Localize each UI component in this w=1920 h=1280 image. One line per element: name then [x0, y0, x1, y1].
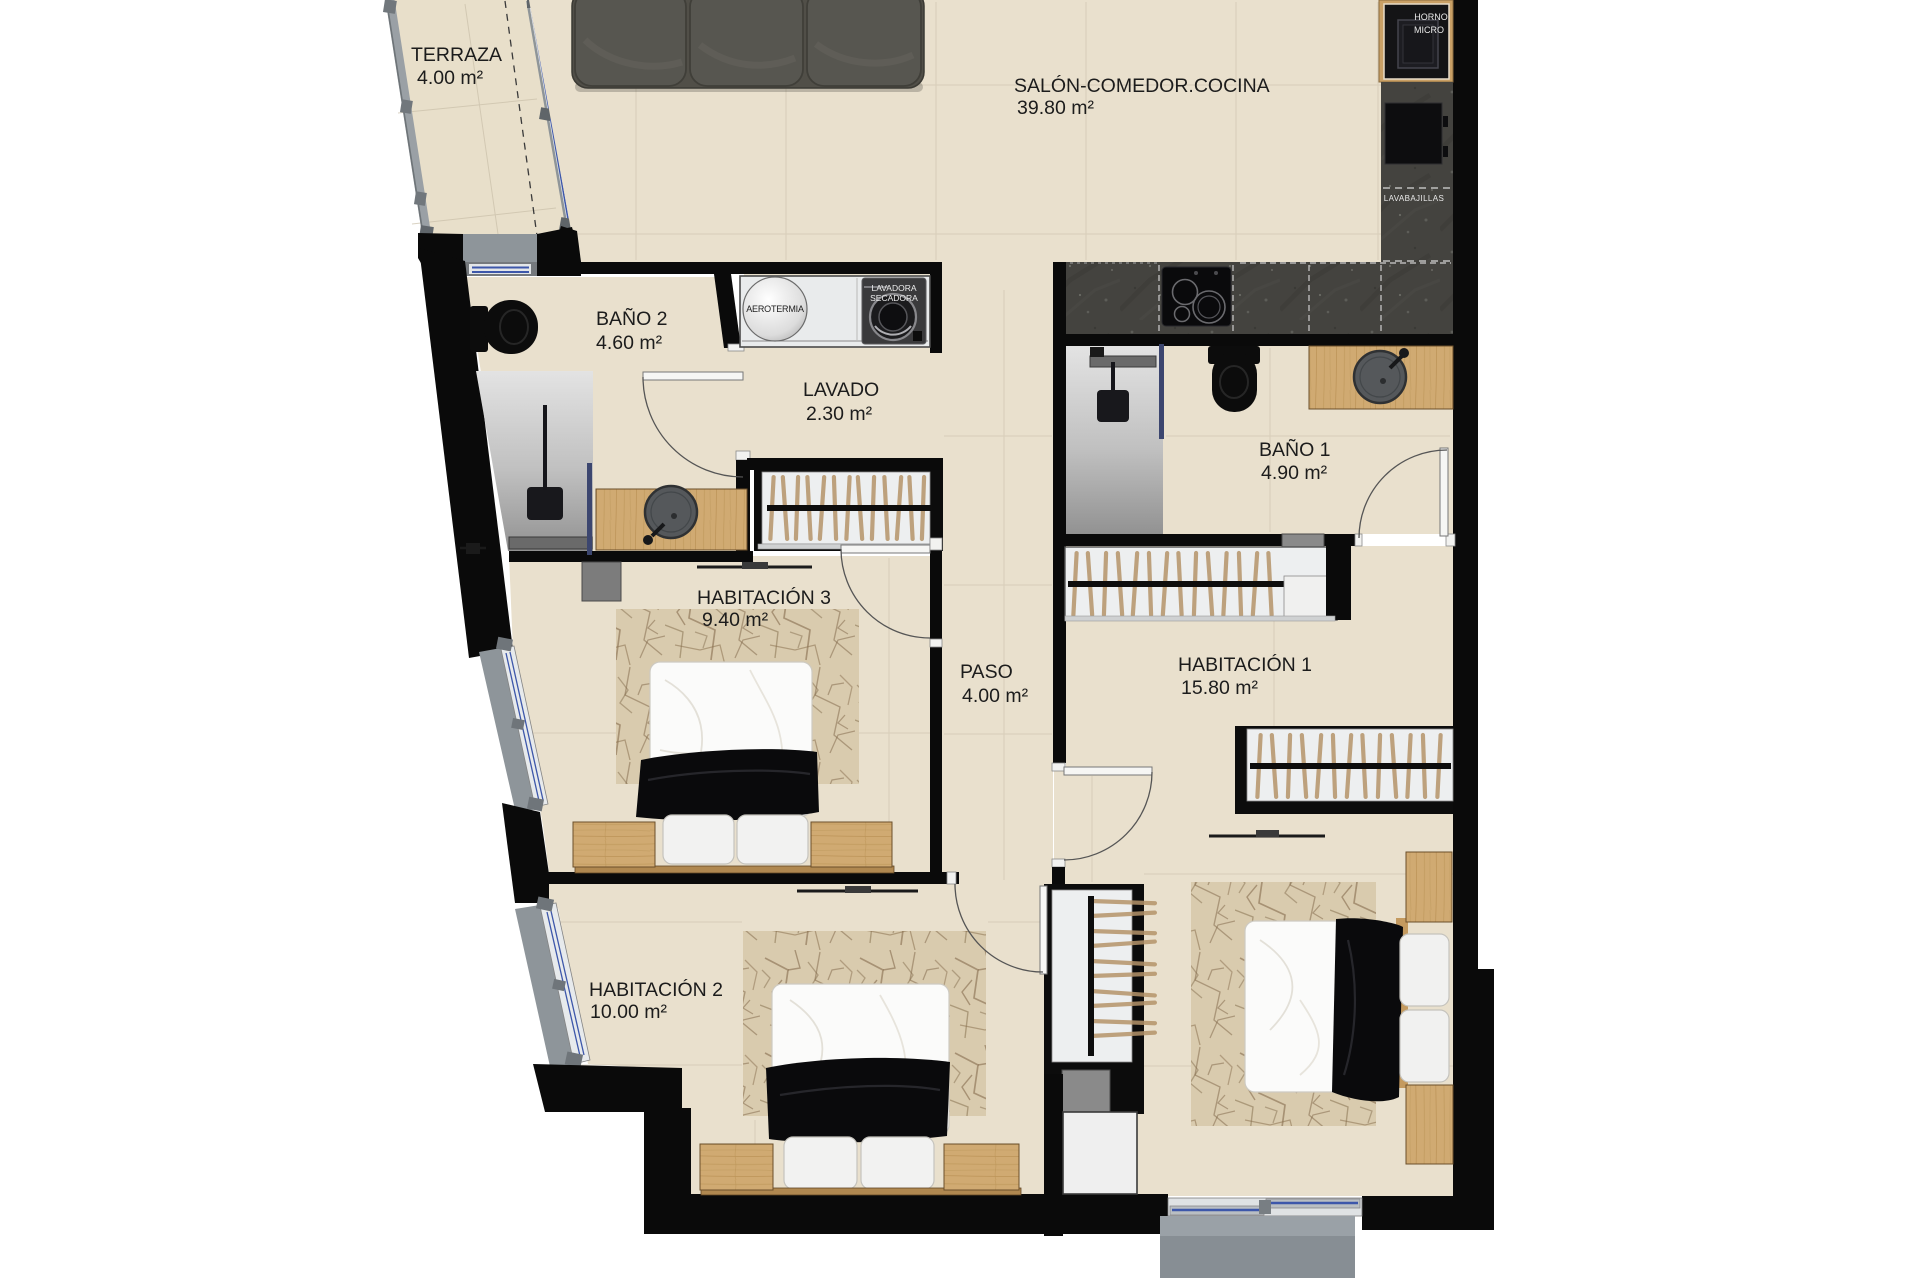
svg-text:15.80 m²: 15.80 m²: [1181, 677, 1258, 699]
svg-text:BAÑO 1: BAÑO 1: [1259, 437, 1331, 461]
svg-text:HABITACIÓN 1: HABITACIÓN 1: [1178, 653, 1312, 676]
svg-text:39.80 m²: 39.80 m²: [1017, 97, 1094, 119]
svg-text:HORNO: HORNO: [1414, 12, 1448, 22]
svg-text:4.00 m²: 4.00 m²: [417, 67, 484, 89]
svg-text:TERRAZA: TERRAZA: [411, 44, 502, 66]
svg-text:4.60 m²: 4.60 m²: [596, 332, 663, 354]
svg-text:9.40 m²: 9.40 m²: [702, 609, 769, 631]
svg-text:2.30 m²: 2.30 m²: [806, 403, 873, 425]
svg-text:BAÑO 2: BAÑO 2: [596, 306, 668, 330]
svg-text:4.00 m²: 4.00 m²: [962, 685, 1029, 707]
svg-text:LAVADO: LAVADO: [803, 379, 879, 401]
svg-text:AEROTERMIA: AEROTERMIA: [746, 304, 804, 314]
svg-text:SALÓN-COMEDOR.COCINA: SALÓN-COMEDOR.COCINA: [1014, 74, 1270, 97]
svg-text:10.00 m²: 10.00 m²: [590, 1001, 667, 1023]
svg-text:SECADORA: SECADORA: [870, 293, 918, 303]
svg-text:LAVADORA: LAVADORA: [871, 283, 916, 293]
svg-text:4.90 m²: 4.90 m²: [1261, 462, 1328, 484]
svg-text:MICRO: MICRO: [1414, 25, 1444, 35]
svg-text:PASO: PASO: [960, 661, 1013, 683]
svg-text:LAVABAJILLAS: LAVABAJILLAS: [1384, 194, 1445, 203]
svg-text:HABITACIÓN 2: HABITACIÓN 2: [589, 978, 723, 1001]
svg-text:HABITACIÓN 3: HABITACIÓN 3: [697, 586, 831, 609]
